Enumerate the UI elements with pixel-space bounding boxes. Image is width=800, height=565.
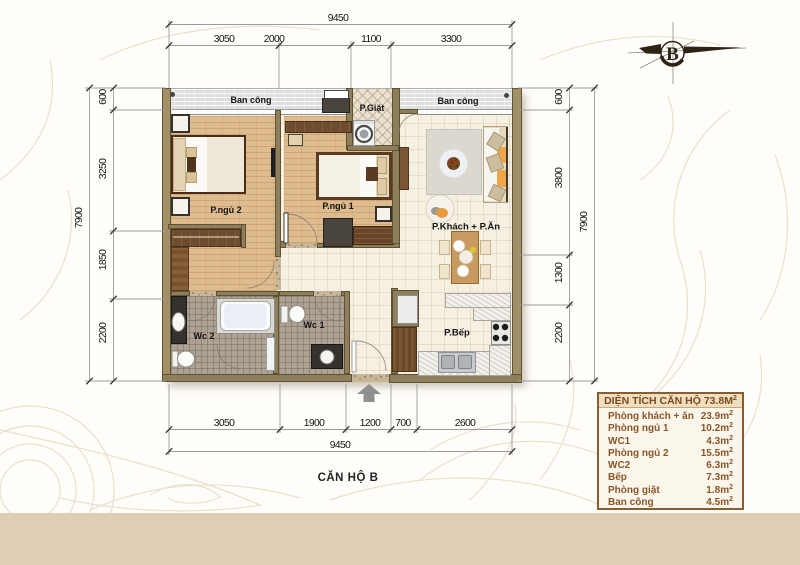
svg-text:B: B: [666, 44, 679, 65]
